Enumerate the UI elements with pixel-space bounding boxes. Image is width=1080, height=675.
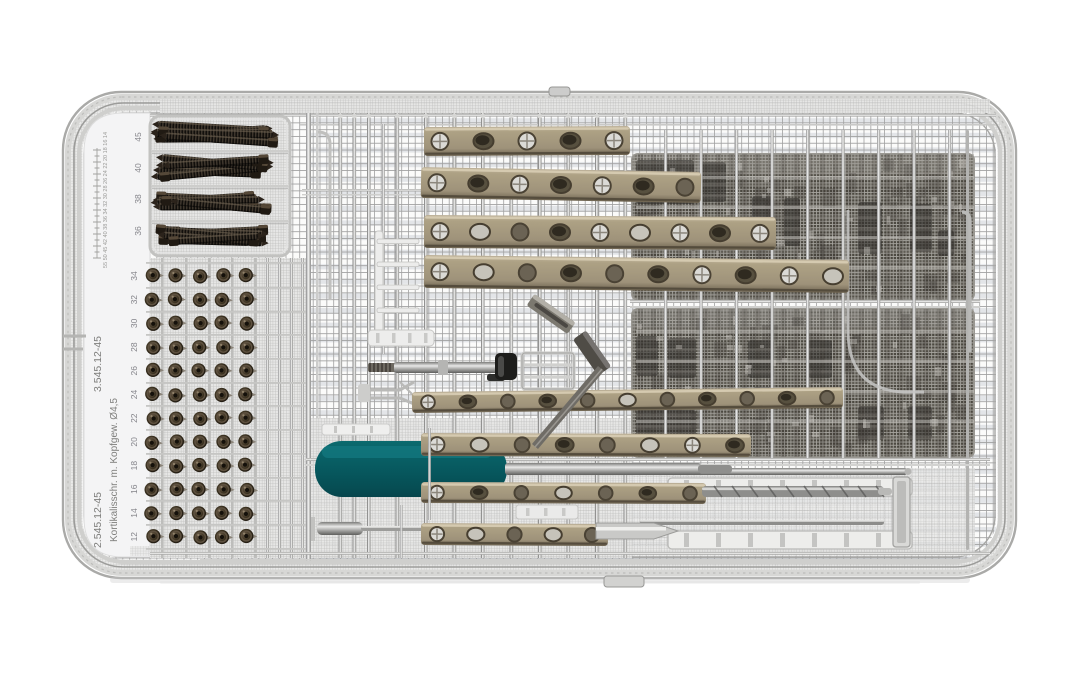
svg-text:55 50 45 42 40 38 36 34 32 30: 55 50 45 42 40 38 36 34 32 30 28 26 24 2… (103, 132, 109, 268)
svg-text:28: 28 (129, 342, 139, 352)
svg-text:24: 24 (129, 390, 139, 400)
svg-text:20: 20 (129, 437, 139, 447)
svg-text:2.545.12-45: 2.545.12-45 (92, 492, 104, 548)
svg-text:16: 16 (129, 484, 139, 494)
svg-text:40: 40 (133, 163, 143, 173)
svg-text:32: 32 (129, 295, 139, 305)
svg-text:38: 38 (133, 194, 143, 204)
svg-text:12: 12 (129, 532, 139, 542)
svg-text:36: 36 (133, 226, 143, 236)
svg-text:18: 18 (129, 461, 139, 471)
svg-text:Kortikalisschr. m. Kopfgew. Ø4: Kortikalisschr. m. Kopfgew. Ø4,5 (109, 398, 120, 542)
svg-text:14: 14 (129, 508, 139, 518)
svg-text:22: 22 (129, 413, 139, 423)
svg-text:30: 30 (129, 318, 139, 328)
svg-text:45: 45 (133, 132, 143, 142)
svg-text:3.545.12-45: 3.545.12-45 (92, 336, 104, 392)
svg-text:26: 26 (129, 366, 139, 376)
svg-text:34: 34 (129, 271, 139, 281)
